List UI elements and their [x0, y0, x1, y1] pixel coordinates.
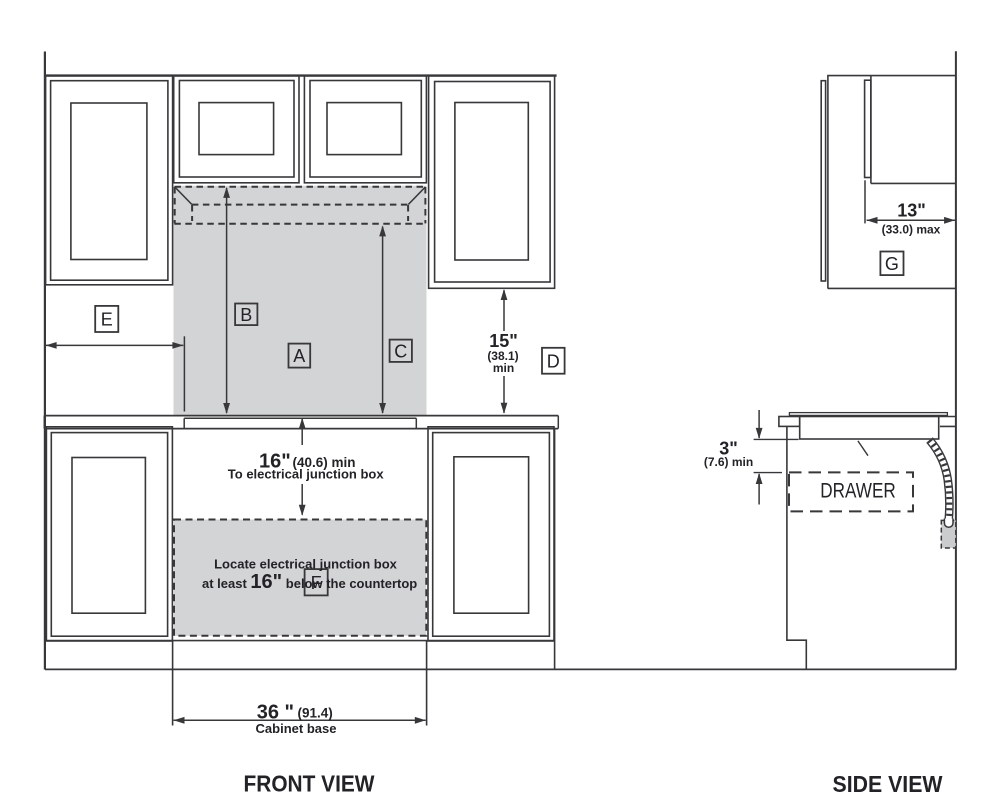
- svg-text:13": 13": [897, 201, 926, 221]
- svg-text:B: B: [240, 305, 252, 325]
- svg-text:Cabinet base: Cabinet base: [256, 721, 337, 736]
- svg-text:D: D: [547, 351, 560, 371]
- svg-text:15": 15": [489, 331, 518, 351]
- svg-text:DRAWER: DRAWER: [820, 480, 896, 503]
- svg-text:A: A: [293, 346, 305, 366]
- svg-text:Locate electrical junction box: Locate electrical junction box: [214, 557, 398, 572]
- svg-text:min: min: [493, 361, 514, 375]
- svg-text:SIDE VIEW: SIDE VIEW: [833, 771, 943, 797]
- svg-text:E: E: [101, 309, 113, 329]
- svg-text:(7.6) min: (7.6) min: [704, 455, 753, 469]
- svg-text:C: C: [394, 341, 407, 361]
- svg-text:(91.4): (91.4): [298, 705, 333, 720]
- svg-text:FRONT VIEW: FRONT VIEW: [244, 771, 375, 797]
- svg-text:G: G: [885, 254, 899, 274]
- svg-text:(33.0) max: (33.0) max: [882, 223, 941, 237]
- svg-text:To electrical junction box: To electrical junction box: [228, 466, 385, 481]
